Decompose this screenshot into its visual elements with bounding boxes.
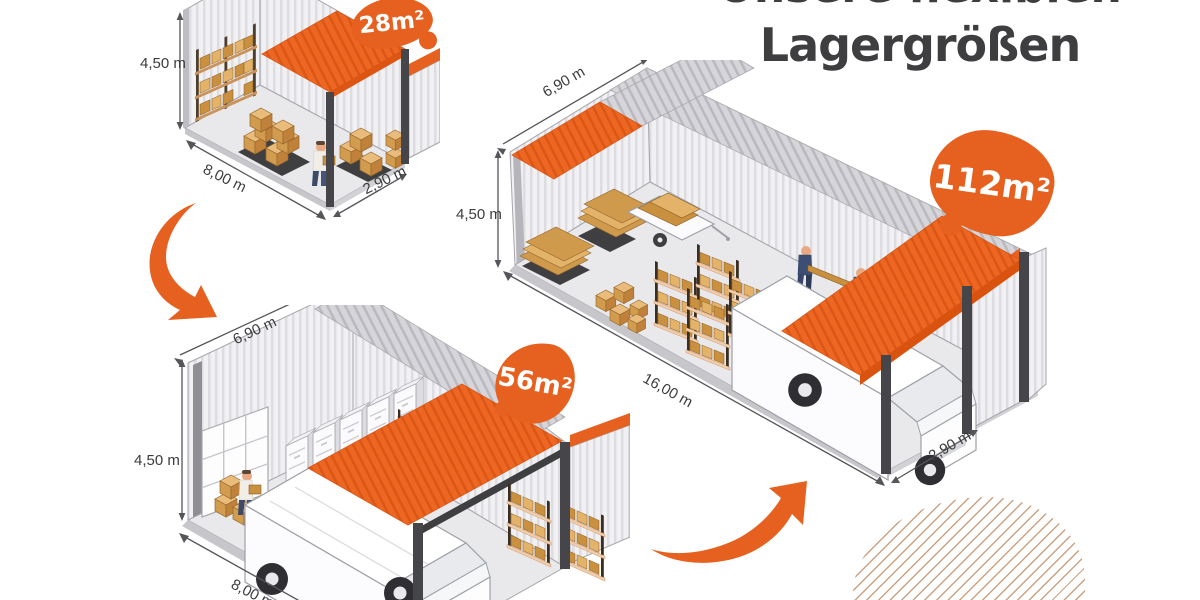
storage-unit-112: 6,90 m 4,50 m 16,00 m 2,90 m — [460, 60, 1080, 490]
right-side-wall — [409, 48, 440, 158]
dim-height-label: 4,50 m — [140, 55, 180, 72]
storage-sizes-infographic: Unsere flexiblen Lagergrößen — [0, 0, 1200, 600]
header-topline-clipped: Unsere flexiblen — [690, 0, 1150, 12]
curved-arrow-down-icon — [138, 200, 253, 330]
dim-height-label: 4,50 m — [134, 452, 176, 469]
hatch-decoration — [853, 497, 1085, 600]
curved-arrow-up-icon — [645, 473, 815, 573]
warehouse-112-illustration — [460, 60, 1080, 490]
dim-height-label: 4,50 m — [456, 206, 496, 223]
